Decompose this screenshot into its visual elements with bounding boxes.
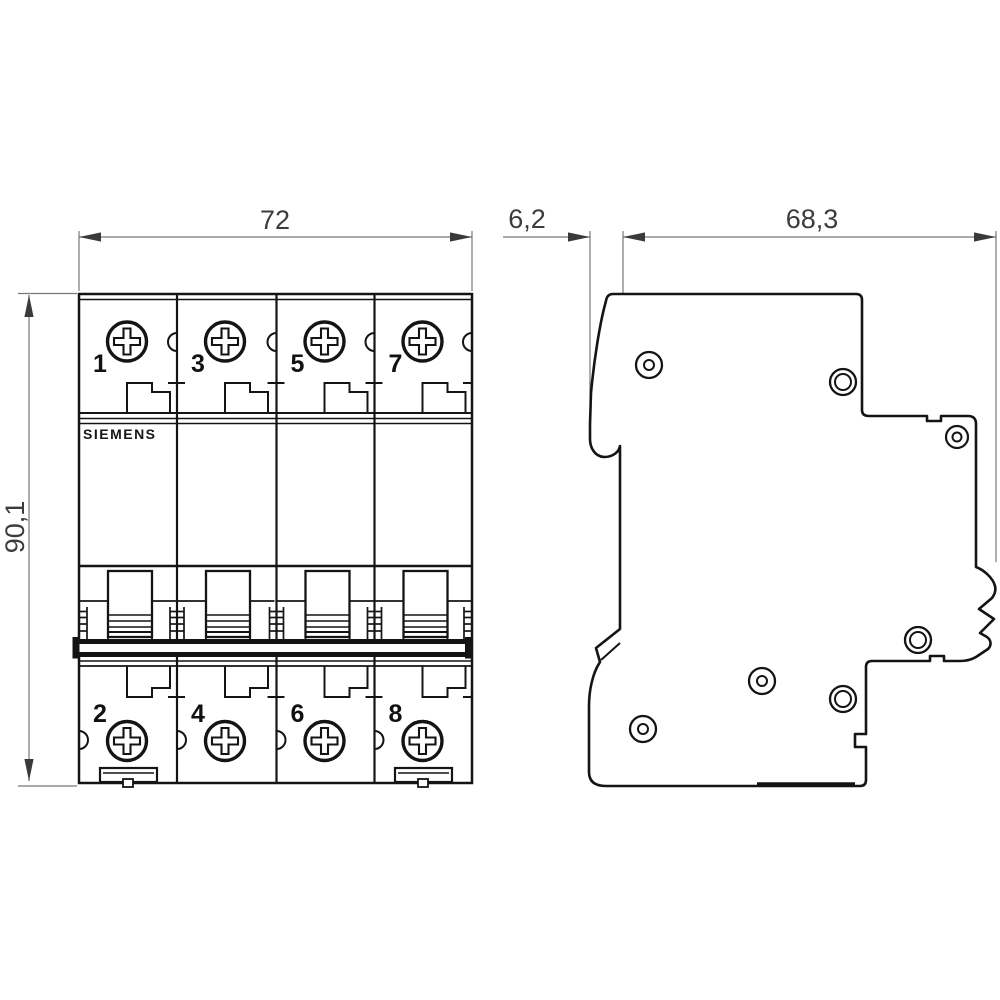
rivet-icon	[830, 369, 856, 395]
dimension-depth: 68,3	[786, 204, 839, 234]
rivet-icon	[905, 627, 931, 653]
handle-tie-bar	[73, 637, 473, 659]
rivet-icon	[749, 668, 775, 694]
screw-icon	[206, 322, 245, 361]
screw-icon	[206, 722, 245, 761]
screw-icon	[305, 722, 344, 761]
pole-label-4: 4	[191, 700, 205, 728]
side-view	[589, 294, 995, 786]
pole-label-1: 1	[93, 350, 107, 378]
pole-label-2: 2	[93, 700, 107, 728]
pole-label-3: 3	[191, 350, 205, 378]
brand-logo: SIEMENS	[83, 426, 157, 442]
technical-drawing: 72 6,2 68,3 90,1	[0, 0, 1000, 1000]
rivet-icon	[946, 426, 968, 448]
pole-label-8: 8	[389, 700, 403, 728]
screw-icon	[305, 322, 344, 361]
rivet-icon	[830, 686, 856, 712]
screw-icon	[108, 322, 147, 361]
front-view: 1 3 5 7 2 4 6 8 SIEMENS	[73, 294, 473, 787]
pole-label-7: 7	[389, 350, 403, 378]
screw-icon	[403, 322, 442, 361]
screw-icon	[108, 722, 147, 761]
pole-label-6: 6	[291, 700, 305, 728]
pole-label-5: 5	[291, 350, 305, 378]
rivet-icon	[630, 716, 656, 742]
dimension-height: 90,1	[0, 501, 30, 554]
technical-drawing-page: 72 6,2 68,3 90,1	[0, 0, 1000, 1000]
screw-icon	[403, 722, 442, 761]
dimension-width: 72	[260, 205, 290, 235]
dimension-rail-offset: 6,2	[508, 204, 546, 234]
rivet-icon	[636, 352, 662, 378]
